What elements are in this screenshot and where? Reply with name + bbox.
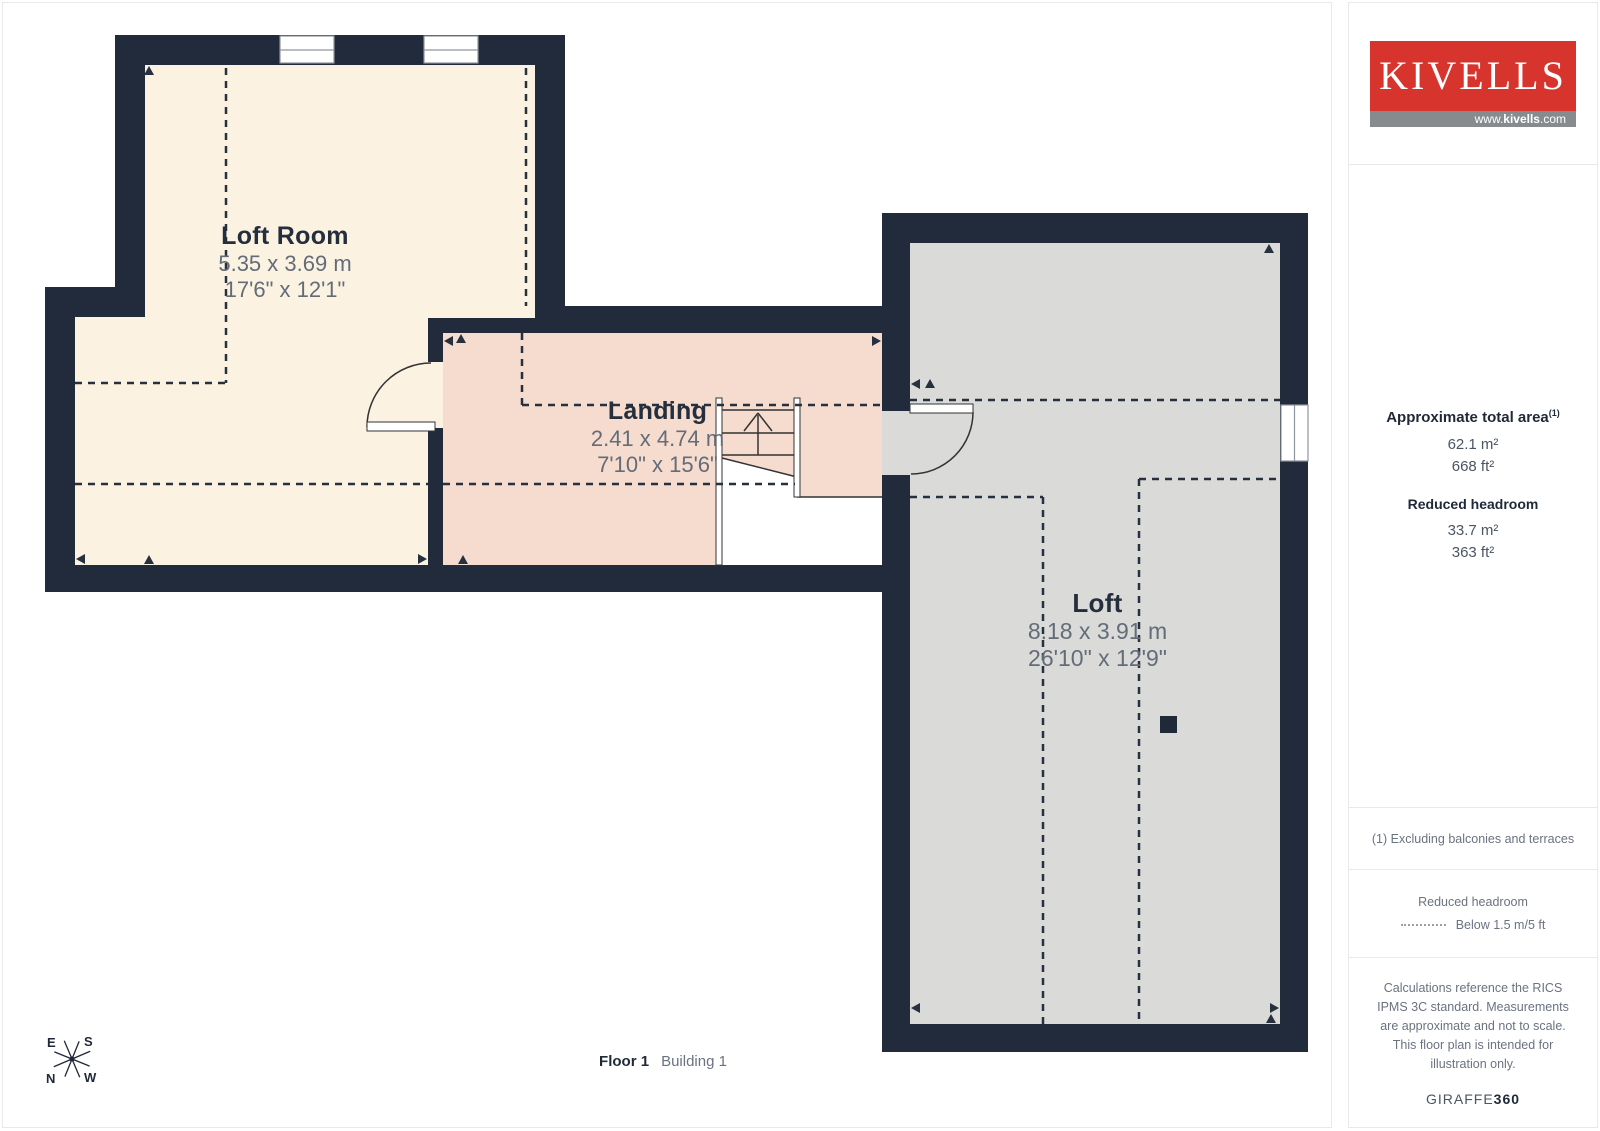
room-name: Loft [975, 588, 1220, 618]
total-area-ft2: 668 ft² [1452, 456, 1495, 478]
room-dimensions-metric: 8.18 x 3.91 m [975, 618, 1220, 645]
reduced-headroom-title: Reduced headroom [1408, 496, 1539, 512]
room-dimensions-imperial: 17'6" x 12'1" [160, 277, 410, 303]
compass-south: S [84, 1034, 93, 1049]
disclaimer-section: Calculations reference the RICS IPMS 3C … [1349, 958, 1597, 1127]
disclaimer-text: Calculations reference the RICS IPMS 3C … [1372, 979, 1574, 1074]
room-dimensions-imperial: 26'10" x 12'9" [975, 645, 1220, 672]
total-area-title: Approximate total area(1) [1386, 408, 1560, 426]
giraffe360-credit: GIRAFFE360 [1426, 1091, 1520, 1107]
window [1281, 405, 1308, 461]
dashed-line-sample-icon [1401, 924, 1446, 926]
reduced-headroom-ft2: 363 ft² [1452, 542, 1495, 564]
floor-label: Floor 1 [599, 1053, 649, 1070]
window [280, 36, 334, 63]
info-sidebar: KIVELLS www.kivells.com Approximate tota… [1348, 2, 1598, 1128]
legend-section: Reduced headroom Below 1.5 m/5 ft [1349, 870, 1597, 958]
logo-website: www.kivells.com [1370, 111, 1576, 127]
room-label-landing: Landing 2.41 x 4.74 m 7'10" x 15'6" [540, 396, 775, 478]
loft-post-marker [1160, 716, 1177, 733]
legend-label: Below 1.5 m/5 ft [1456, 918, 1546, 932]
area-summary-section: Approximate total area(1) 62.1 m² 668 ft… [1349, 165, 1597, 808]
floorplan-page: E S N W Loft Room 5.35 x 3.69 m 17'6" x … [0, 0, 1600, 1131]
floor-indicator: Floor 1Building 1 [563, 1053, 763, 1070]
kivells-logo: KIVELLS www.kivells.com [1370, 41, 1576, 127]
room-label-loft: Loft 8.18 x 3.91 m 26'10" x 12'9" [975, 588, 1220, 672]
room-label-loft-room: Loft Room 5.35 x 3.69 m 17'6" x 12'1" [160, 221, 410, 303]
building-label: Building 1 [661, 1053, 727, 1070]
room-floors [75, 65, 1280, 1024]
compass-west: W [84, 1070, 96, 1085]
room-dimensions-metric: 2.41 x 4.74 m [540, 426, 775, 452]
footnote-section: (1) Excluding balconies and terraces [1349, 808, 1597, 870]
room-dimensions-metric: 5.35 x 3.69 m [160, 251, 410, 277]
total-area-m2: 62.1 m² [1448, 434, 1499, 456]
legend-title: Reduced headroom [1418, 895, 1528, 909]
logo-brand-text: KIVELLS [1379, 52, 1567, 99]
logo-section: KIVELLS www.kivells.com [1349, 3, 1597, 165]
room-name: Loft Room [160, 221, 410, 251]
room-name: Landing [540, 396, 775, 426]
compass-east: E [47, 1035, 56, 1050]
window [424, 36, 478, 63]
reduced-headroom-m2: 33.7 m² [1448, 520, 1499, 542]
footnote-marker: (1) [1549, 408, 1560, 418]
compass-north: N [46, 1071, 55, 1086]
footnote-text: (1) Excluding balconies and terraces [1372, 832, 1574, 846]
room-dimensions-imperial: 7'10" x 15'6" [540, 452, 775, 478]
